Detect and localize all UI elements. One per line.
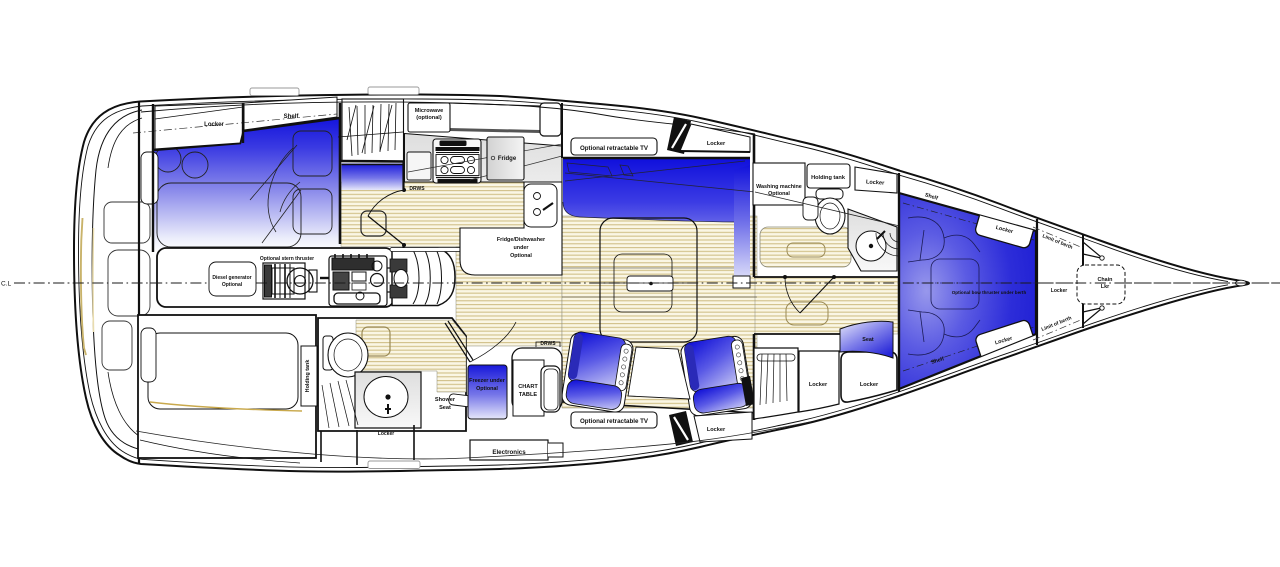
svg-text:(optional): (optional)	[416, 115, 442, 121]
svg-text:Lkr: Lkr	[1101, 284, 1110, 290]
svg-text:Locker: Locker	[707, 427, 726, 433]
svg-text:Fridge: Fridge	[498, 156, 517, 162]
svg-text:Locker: Locker	[1051, 288, 1067, 294]
svg-text:Optional: Optional	[768, 191, 790, 197]
svg-text:Optional: Optional	[476, 386, 498, 392]
svg-text:Optional retractable TV: Optional retractable TV	[580, 145, 649, 152]
svg-text:Seat: Seat	[862, 337, 874, 343]
svg-text:CHART: CHART	[518, 384, 538, 390]
svg-text:Holding tank: Holding tank	[811, 175, 846, 181]
svg-text:Shower: Shower	[435, 397, 456, 403]
svg-text:under: under	[514, 245, 530, 251]
svg-text:Freezer under: Freezer under	[469, 378, 506, 384]
svg-text:Holding tank: Holding tank	[305, 360, 311, 393]
svg-text:Locker: Locker	[809, 382, 828, 388]
svg-text:Optional stern thruster: Optional stern thruster	[260, 256, 314, 262]
svg-text:Optional bow thruster under be: Optional bow thruster under berth	[952, 290, 1027, 295]
svg-text:Locker: Locker	[860, 382, 879, 388]
svg-text:Fridge/Dishwasher: Fridge/Dishwasher	[497, 237, 546, 243]
svg-text:Chain: Chain	[1098, 277, 1113, 283]
svg-text:Optional retractable TV: Optional retractable TV	[580, 418, 649, 425]
svg-text:Locker: Locker	[707, 141, 726, 147]
svg-text:Microwave: Microwave	[415, 108, 444, 114]
svg-text:DRWS: DRWS	[409, 186, 425, 192]
svg-text:Locker: Locker	[378, 431, 394, 437]
svg-text:Shelf: Shelf	[284, 114, 300, 120]
svg-text:TABLE: TABLE	[519, 392, 537, 398]
svg-text:Locker: Locker	[204, 122, 224, 128]
svg-text:Washing machine: Washing machine	[756, 184, 802, 190]
svg-text:Optional: Optional	[222, 282, 243, 288]
svg-text:DRWS: DRWS	[540, 341, 556, 347]
svg-text:Seat: Seat	[439, 405, 451, 411]
svg-text:C.L: C.L	[1, 281, 12, 288]
svg-text:Diesel generator: Diesel generator	[212, 275, 251, 281]
svg-text:Optional: Optional	[510, 253, 532, 259]
svg-text:Electronics: Electronics	[492, 449, 526, 456]
